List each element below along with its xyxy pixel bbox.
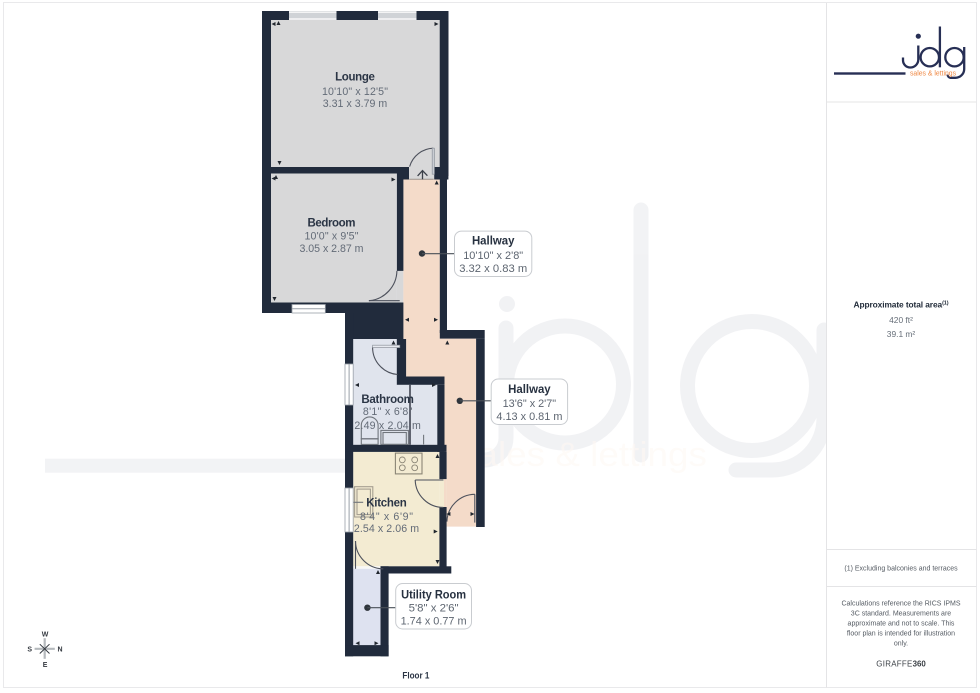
svg-text:5'8" x 2'6": 5'8" x 2'6"	[409, 602, 459, 614]
svg-text:39.1 m²: 39.1 m²	[887, 329, 916, 339]
svg-text:floor plan is intended for ill: floor plan is intended for illustration	[847, 631, 955, 638]
svg-text:E: E	[43, 662, 48, 669]
svg-text:Floor 1: Floor 1	[402, 671, 430, 682]
svg-text:4.13 x 0.81 m: 4.13 x 0.81 m	[496, 411, 562, 423]
svg-text:Utility Room: Utility Room	[401, 588, 466, 602]
svg-text:Calculations reference the RIC: Calculations reference the RICS IPMS	[841, 601, 960, 608]
svg-text:N: N	[57, 647, 62, 654]
svg-text:3.32 x 0.83 m: 3.32 x 0.83 m	[459, 263, 527, 275]
svg-text:10'10" x 12'5": 10'10" x 12'5"	[322, 86, 388, 98]
svg-text:W: W	[42, 631, 49, 638]
svg-text:sales & lettings: sales & lettings	[459, 436, 707, 474]
svg-text:GIRAFFE360: GIRAFFE360	[876, 660, 926, 669]
svg-text:8'4" x 6'9": 8'4" x 6'9"	[360, 511, 413, 523]
svg-text:3C standard. Measurements are: 3C standard. Measurements are	[851, 611, 951, 618]
svg-text:(1) Excluding balconies and te: (1) Excluding balconies and terraces	[844, 566, 958, 573]
svg-text:Lounge: Lounge	[335, 72, 375, 84]
svg-text:only.: only.	[894, 641, 908, 648]
svg-text:2.49 x 2.04 m: 2.49 x 2.04 m	[354, 420, 421, 432]
svg-text:approximate and not to scale.: approximate and not to scale. This	[848, 621, 955, 628]
svg-text:S: S	[27, 647, 32, 654]
svg-text:8'1" x 6'8": 8'1" x 6'8"	[363, 406, 413, 418]
svg-text:Bedroom: Bedroom	[308, 217, 356, 229]
svg-text:Kitchen: Kitchen	[366, 498, 407, 510]
svg-text:3.05 x 2.87 m: 3.05 x 2.87 m	[300, 243, 364, 255]
svg-text:10'0" x 9'5": 10'0" x 9'5"	[305, 230, 359, 242]
svg-text:sales & lettings: sales & lettings	[910, 68, 956, 77]
svg-text:Bathroom: Bathroom	[361, 394, 414, 406]
svg-text:Approximate total area(1): Approximate total area(1)	[854, 300, 949, 310]
svg-text:Hallway: Hallway	[472, 233, 515, 247]
svg-text:1.74 x 0.77 m: 1.74 x 0.77 m	[401, 615, 467, 627]
svg-text:13'6" x 2'7": 13'6" x 2'7"	[503, 398, 557, 410]
svg-text:2.54 x 2.06 m: 2.54 x 2.06 m	[354, 523, 419, 535]
svg-text:10'10" x 2'8": 10'10" x 2'8"	[463, 250, 523, 262]
svg-text:420 ft²: 420 ft²	[889, 315, 913, 325]
svg-text:3.31 x 3.79 m: 3.31 x 3.79 m	[323, 98, 388, 110]
svg-text:Hallway: Hallway	[508, 382, 551, 396]
